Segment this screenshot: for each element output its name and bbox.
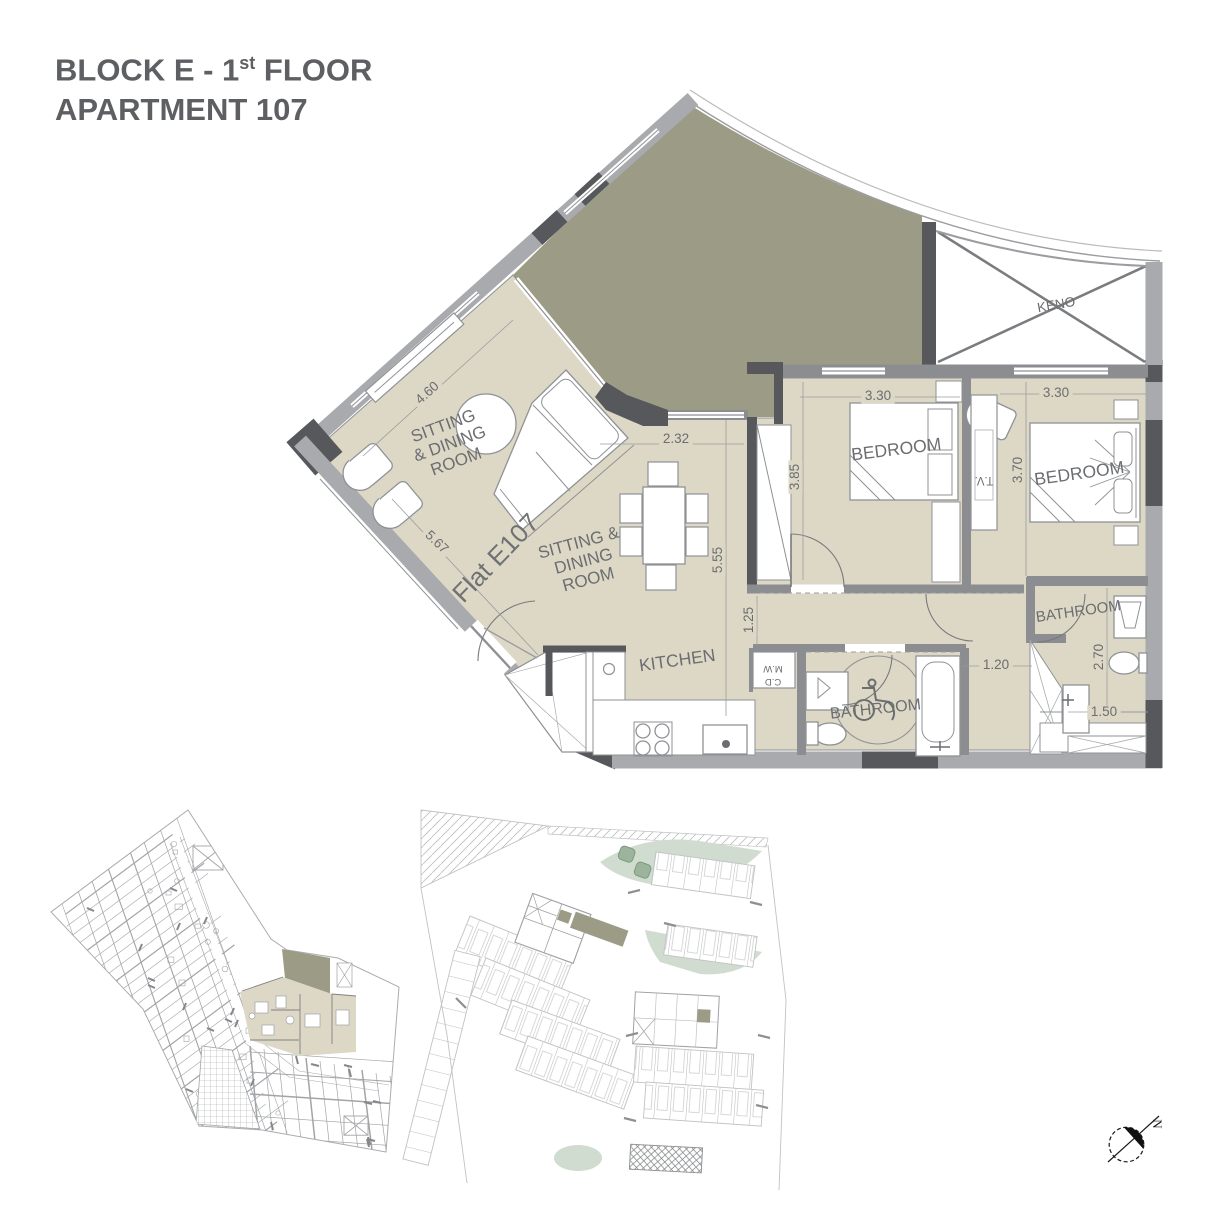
svg-text:3.30: 3.30 xyxy=(865,388,891,403)
svg-text:1.25: 1.25 xyxy=(741,607,756,633)
svg-text:2.70: 2.70 xyxy=(1091,644,1106,670)
svg-text:N: N xyxy=(1150,1119,1165,1129)
svg-text:2.32: 2.32 xyxy=(663,431,689,446)
svg-text:1.50: 1.50 xyxy=(1091,704,1117,719)
svg-text:5.55: 5.55 xyxy=(710,547,725,573)
svg-text:3.85: 3.85 xyxy=(787,464,802,490)
svg-text:T.V.: T.V. xyxy=(975,474,994,486)
svg-text:C.D: C.D xyxy=(765,676,782,687)
svg-text:M.W: M.W xyxy=(763,663,783,674)
svg-text:3.30: 3.30 xyxy=(1043,385,1069,400)
svg-text:1.20: 1.20 xyxy=(983,657,1009,672)
svg-text:3.70: 3.70 xyxy=(1010,457,1025,483)
